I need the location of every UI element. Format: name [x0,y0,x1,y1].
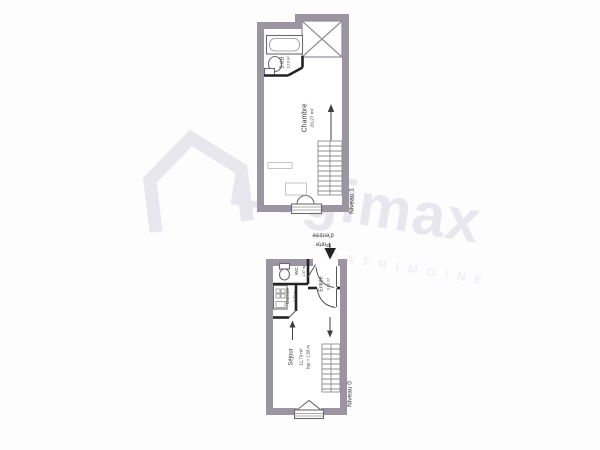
level1-name-label: Niveau 1 [347,188,356,214]
room-name: WC [295,265,302,277]
kitchen-counter-icon [274,286,288,310]
room-area: 20,27 m² [311,104,318,133]
room-label-entree: Entrée 3,92 m² [319,276,332,291]
floor-plan-drawing [0,0,600,450]
level0-name-label: Niveau 0 [345,381,354,407]
room-area: 11,73 m² [297,345,305,369]
room-area: 3,19 m² [287,55,293,69]
room-area: 3,92 m² [326,276,331,291]
room-ceiling-height: hsp = 2,58 m [305,345,312,369]
room-label-cuisine: Cuisine 2,73 m² [286,288,298,304]
room-name: Entrée [319,276,327,291]
entrance-door-label-line2: d'entrée [312,230,334,239]
room-name: Chambre [300,104,310,133]
room-label-wc: WC 1,57 m² [295,265,307,277]
entrance-door-label-line1: Porte [312,239,334,248]
room-name: Séjour [286,345,297,369]
room-area: 1,57 m² [302,265,307,277]
level0-stairs-icon [322,344,340,392]
level-name: Niveau 1 [347,188,356,214]
room-name: Cuisine [286,288,293,304]
entrance-opening [313,258,338,267]
entrance-door-label: Porte d'entrée [312,230,334,247]
level1-closet-icon [302,21,342,57]
toilet-icon [280,264,290,281]
room-label-sejour: Séjour 11,73 m² hsp = 2,58 m [286,345,311,369]
room-label-sdb: S.d.B. 3,19 m² [280,55,293,69]
floor-plan-image: Logimax PATRIMOINE [0,0,600,450]
level-name: Niveau 0 [345,381,354,407]
level1-stairs-icon [318,141,342,195]
room-label-chambre: Chambre 20,27 m² [300,104,317,133]
room-area: 2,73 m² [293,288,298,304]
bathtub-icon [267,36,303,55]
room-name: S.d.B. [280,55,287,69]
